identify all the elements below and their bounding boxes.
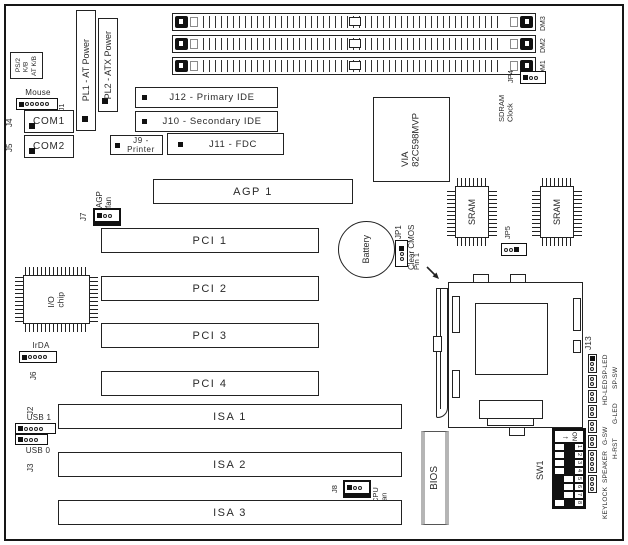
socket-tab xyxy=(509,427,525,436)
northbridge-chip: VIA 82C598MVP xyxy=(373,97,450,182)
sram-chip: SRAM xyxy=(447,178,497,246)
pin-open xyxy=(34,438,38,442)
pin-group xyxy=(588,435,597,448)
pin-open xyxy=(590,452,594,456)
dip-switch-4: 4 xyxy=(555,468,583,474)
dip-slider xyxy=(564,500,573,506)
sram-chip: SRAM xyxy=(532,178,582,246)
printer-port-box: J9 - Printer xyxy=(110,135,163,155)
dimm-latch xyxy=(190,39,198,49)
dip-number: 1 xyxy=(575,444,583,450)
dimm-latch xyxy=(190,61,198,71)
socket-tab xyxy=(473,274,489,283)
pin1-mark xyxy=(82,116,88,122)
front-panel-header xyxy=(588,354,597,493)
dimm-latch xyxy=(510,39,518,49)
pin-1-filled xyxy=(97,213,102,218)
dimm-clip xyxy=(520,38,533,50)
dimm-clip xyxy=(175,38,188,50)
pin-1-filled xyxy=(514,247,519,252)
j3-label: J3 xyxy=(27,457,36,472)
pin-1-filled xyxy=(590,356,595,361)
dip-rows: 12345678 xyxy=(555,444,583,506)
pin-open xyxy=(590,427,594,431)
pl2-atx-power-box: PL2 - ATX Power xyxy=(98,18,118,112)
jp4-jumper xyxy=(520,71,546,84)
on-label: ON xyxy=(571,432,577,441)
pin-1-filled xyxy=(399,246,404,251)
pin-open xyxy=(509,248,513,252)
cpu-socket xyxy=(436,273,588,441)
dip-switch-2: 2 xyxy=(555,452,583,458)
pin-open xyxy=(590,407,594,411)
pin-open xyxy=(590,462,594,466)
pin-1-filled xyxy=(19,102,24,107)
mouse-header xyxy=(16,98,58,110)
pin-open xyxy=(353,486,357,490)
h-rst-label: H-RST xyxy=(612,431,619,459)
dip-switch-5: 5 xyxy=(555,476,583,482)
pin-open xyxy=(40,102,44,106)
dip-switch-8: 8 xyxy=(555,500,583,506)
bios-chip: BIOS xyxy=(421,431,449,525)
j12-label: J12 - Primary IDE xyxy=(147,92,277,103)
usb1-header xyxy=(15,423,56,434)
dip-number: 6 xyxy=(575,484,583,490)
bios-label: BIOS xyxy=(429,466,440,490)
socket-slot xyxy=(573,298,581,331)
pin-group xyxy=(588,375,597,388)
pin-open xyxy=(590,397,594,401)
dimm-clip xyxy=(520,16,533,28)
dip-window xyxy=(555,500,573,506)
cpu-fan-header xyxy=(343,480,371,498)
pin-open xyxy=(590,437,594,441)
pin-group xyxy=(588,390,597,403)
pin-1-filled xyxy=(523,75,528,80)
hd-led-label: HD-LED xyxy=(602,377,609,405)
pin-open xyxy=(25,102,29,106)
dm3-label: DM3 xyxy=(540,13,548,31)
pci-slot-4: PCI 4 xyxy=(101,371,319,396)
dimm-latch xyxy=(190,17,198,27)
pin-open xyxy=(590,367,594,371)
on-direction-arrow-icon: → xyxy=(562,433,570,441)
j11-label: J11 - FDC xyxy=(183,139,283,150)
sram-label: SRAM xyxy=(467,199,477,225)
cpu-die-area xyxy=(475,303,548,375)
chip-pins xyxy=(447,188,455,236)
chip-pins xyxy=(15,277,23,322)
dip-number: 7 xyxy=(575,492,583,498)
isa2-label: ISA 2 xyxy=(213,459,247,471)
battery: Battery xyxy=(338,221,395,278)
pin-open xyxy=(28,355,32,359)
jp5-jumper xyxy=(501,243,527,256)
pci-slot-1: PCI 1 xyxy=(101,228,319,253)
pin-open xyxy=(108,214,112,218)
speaker-label: SPEAKER xyxy=(602,445,609,483)
pin-open xyxy=(24,438,28,442)
dm2-label: DM2 xyxy=(540,35,548,53)
dip-slider xyxy=(564,444,573,450)
pin-1-filled xyxy=(18,426,23,431)
dip-slider xyxy=(555,476,564,482)
secondary-ide-box: J10 - Secondary IDE xyxy=(135,111,278,132)
pin1-label: Pin 1 xyxy=(413,248,421,270)
at-kb-label: AT K/B xyxy=(31,56,38,76)
pin-open xyxy=(45,102,49,106)
jp1-label: JP1 xyxy=(395,221,404,239)
socket-tab xyxy=(510,274,526,283)
lever-notch xyxy=(433,336,442,352)
dimm-latch xyxy=(510,17,518,27)
sp-sw-label: SP-SW xyxy=(612,361,619,389)
pin-open xyxy=(590,412,594,416)
pci-slot-2: PCI 2 xyxy=(101,276,319,301)
g-sw-label: G-SW xyxy=(602,419,609,445)
chip-pins xyxy=(25,267,88,275)
dip-number: 2 xyxy=(575,452,583,458)
usb0-header xyxy=(15,434,48,445)
io-chip-label: I/O chip xyxy=(47,292,66,308)
dip-window xyxy=(555,476,573,482)
sw1-label: SW1 xyxy=(535,442,545,480)
j5-label: J5 xyxy=(6,136,15,152)
pin-open xyxy=(590,457,594,461)
pin-open xyxy=(358,486,362,490)
dimm-clip xyxy=(175,60,188,72)
isa-slot-1: ISA 1 xyxy=(58,404,402,429)
pl2-label: PL2 - ATX Power xyxy=(103,31,113,99)
pin-open xyxy=(29,438,33,442)
pin-open xyxy=(33,355,37,359)
socket-slot xyxy=(452,370,460,398)
sram-label: SRAM xyxy=(552,199,562,225)
isa1-label: ISA 1 xyxy=(213,411,247,423)
agp-fan-header xyxy=(93,208,121,226)
sdram-clock-label: SDRAM Clock xyxy=(498,86,515,122)
motherboard-diagram: PS/2 K/B AT K/B Mouse J1 J4 COM1 J5 COM2… xyxy=(0,0,628,545)
pin1-mark xyxy=(29,123,35,129)
pin-group xyxy=(588,450,597,473)
chip-pins xyxy=(489,188,497,236)
keyboard-connector-box: PS/2 K/B AT K/B xyxy=(10,52,43,79)
northbridge-label: VIA 82C598MVP xyxy=(401,113,422,167)
pin-open xyxy=(35,102,39,106)
socket-slot xyxy=(573,340,581,353)
sw1-dip-switch-block: → ON 12345678 xyxy=(552,428,586,509)
socket-cam xyxy=(487,418,534,426)
j4-label: J4 xyxy=(6,111,15,127)
chip-pins xyxy=(532,188,540,236)
j9-label: J9 - Printer xyxy=(120,136,162,154)
pin-open xyxy=(103,214,107,218)
chip-pins xyxy=(574,188,582,236)
dimm-slot-dm1 xyxy=(172,57,536,75)
sp-led-label: SP-LED xyxy=(602,351,609,379)
j1-label: J1 xyxy=(59,95,67,111)
dip-slider xyxy=(564,452,573,458)
pin-open xyxy=(590,362,594,366)
pin-open xyxy=(590,477,594,481)
pci1-label: PCI 1 xyxy=(192,235,227,247)
pin-open xyxy=(24,427,28,431)
pci4-label: PCI 4 xyxy=(192,378,227,390)
dimm-key-notch xyxy=(349,39,361,48)
pin-open xyxy=(534,76,538,80)
j7-label: J7 xyxy=(80,206,89,221)
primary-ide-box: J12 - Primary IDE xyxy=(135,87,278,108)
io-chip: I/O chip xyxy=(15,267,98,332)
isa3-label: ISA 3 xyxy=(213,507,247,519)
dimm-key-notch xyxy=(349,61,361,70)
pin-group xyxy=(588,420,597,433)
dip-number: 8 xyxy=(575,500,583,506)
chip-pins xyxy=(90,277,98,322)
pin-open xyxy=(504,248,508,252)
pin-open xyxy=(590,382,594,386)
dip-slider xyxy=(555,484,564,490)
com2-port-box: COM2 xyxy=(24,135,74,158)
dip-number: 5 xyxy=(575,476,583,482)
dip-number: 4 xyxy=(575,468,583,474)
pin-open xyxy=(38,355,42,359)
pin-open xyxy=(590,482,594,486)
pin-open xyxy=(590,392,594,396)
cpu-socket-lever xyxy=(436,288,448,418)
dip-switch-1: 1 xyxy=(555,444,583,450)
dip-slider xyxy=(564,468,573,474)
pl1-at-power-box: PL1 - AT Power xyxy=(76,10,96,131)
irda-label: IrDA xyxy=(22,341,60,350)
dip-window xyxy=(555,492,573,498)
agp-slot: AGP 1 xyxy=(153,179,353,204)
dip-window xyxy=(555,468,573,474)
usb0-label: USB 0 xyxy=(19,446,57,455)
dip-slider xyxy=(555,492,564,498)
dimm-key-notch xyxy=(349,17,361,26)
chip-pins xyxy=(457,238,487,246)
pci-slot-3: PCI 3 xyxy=(101,323,319,348)
pin-open xyxy=(30,102,34,106)
usb1-label: USB 1 xyxy=(20,413,58,422)
pin-open xyxy=(590,487,594,491)
dip-switch-6: 6 xyxy=(555,484,583,490)
j10-label: J10 - Secondary IDE xyxy=(147,116,277,127)
irda-header xyxy=(19,351,57,363)
dip-window xyxy=(555,460,573,466)
pin-group xyxy=(588,354,597,373)
pin-open xyxy=(590,467,594,471)
dip-window xyxy=(555,484,573,490)
com1-port-box: COM1 xyxy=(24,110,74,133)
jp5-label: JP5 xyxy=(504,221,512,239)
chip-pins xyxy=(25,324,88,332)
j8-label: J8 xyxy=(331,478,339,493)
j13-label: J13 xyxy=(584,326,594,350)
battery-label: Battery xyxy=(361,235,371,264)
pin-open xyxy=(39,427,43,431)
agp-fan-label: AGP fan xyxy=(96,176,114,208)
keylock-label: KEYLOCK xyxy=(602,481,609,519)
pin-open xyxy=(400,252,404,256)
dimm-slot-dm3 xyxy=(172,13,536,31)
chip-pins xyxy=(542,238,572,246)
pin-open xyxy=(529,76,533,80)
pci3-label: PCI 3 xyxy=(192,330,227,342)
pci2-label: PCI 2 xyxy=(192,283,227,295)
dip-number: 3 xyxy=(575,460,583,466)
chip-pins xyxy=(457,178,487,186)
pin-open xyxy=(400,257,404,261)
pin-open xyxy=(590,377,594,381)
dip-switch-3: 3 xyxy=(555,460,583,466)
pin1-mark xyxy=(29,148,35,154)
dip-on-header: → ON xyxy=(555,431,583,442)
socket-slot xyxy=(452,296,460,333)
pin-open xyxy=(29,427,33,431)
dip-slider xyxy=(564,460,573,466)
socket-cam xyxy=(479,400,543,419)
isa-slot-2: ISA 2 xyxy=(58,452,402,477)
pin-open xyxy=(43,355,47,359)
dimm-slot-dm2 xyxy=(172,35,536,53)
jp4-label: JP4 xyxy=(507,65,515,83)
pin-1-filled xyxy=(18,437,23,442)
pin-open xyxy=(34,427,38,431)
com1-label: COM1 xyxy=(33,116,65,127)
g-led-label: G-LED xyxy=(612,396,619,424)
mouse-label: Mouse xyxy=(18,88,58,97)
com2-label: COM2 xyxy=(33,141,65,152)
pin-open xyxy=(590,422,594,426)
pl1-label: PL1 - AT Power xyxy=(81,39,91,101)
j6-label: J6 xyxy=(30,365,39,380)
pin-1-filled xyxy=(22,355,27,360)
dip-switch-7: 7 xyxy=(555,492,583,498)
pin-1-filled xyxy=(347,485,352,490)
pin-group xyxy=(588,475,597,493)
dip-window xyxy=(555,452,573,458)
ps2-kb-label: PS/2 K/B xyxy=(15,58,30,72)
chip-pins xyxy=(542,178,572,186)
dip-window xyxy=(555,444,573,450)
pin-open xyxy=(590,442,594,446)
agp-slot-label: AGP 1 xyxy=(233,186,273,198)
pin-group xyxy=(588,405,597,418)
isa-slot-3: ISA 3 xyxy=(58,500,402,525)
fdc-box: J11 - FDC xyxy=(167,133,284,155)
dimm-clip xyxy=(175,16,188,28)
